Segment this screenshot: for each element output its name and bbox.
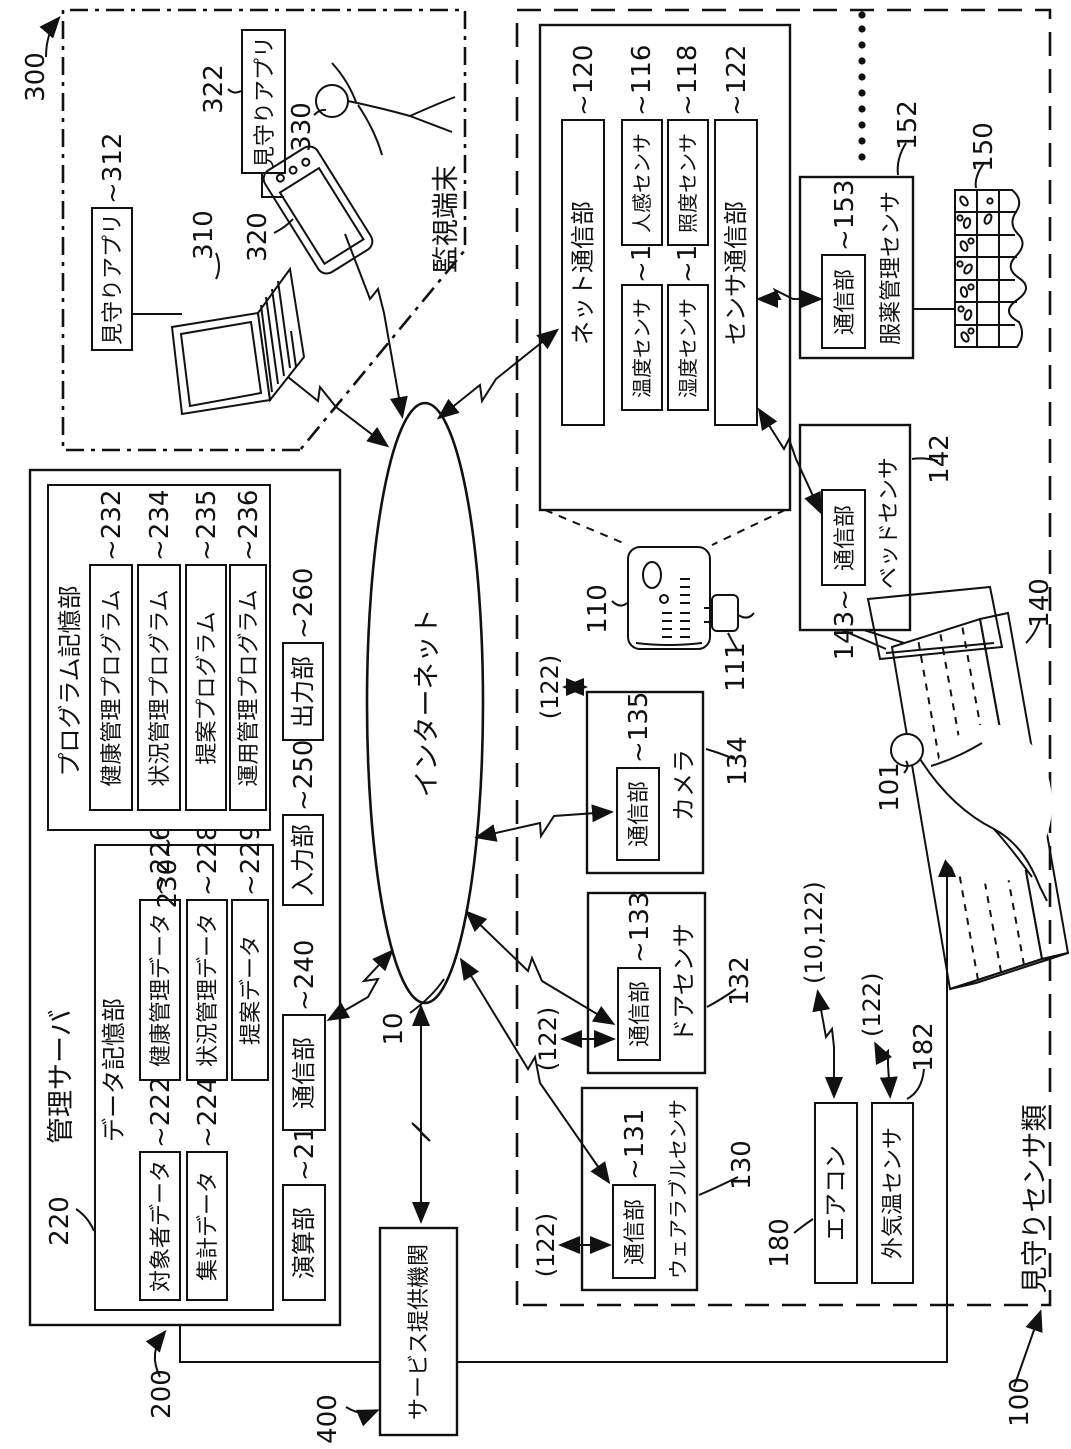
ref-200: 200 (147, 1369, 177, 1419)
wearable-sensor-label: ウェアラブルセンサ (666, 1099, 690, 1279)
illuminance-sensor-label: 照度センサ (676, 133, 700, 233)
ref-130: 130 (727, 1140, 757, 1190)
link-label-122-camera: (122) (536, 655, 564, 720)
leader-320 (274, 219, 293, 233)
ref-220: 220 (45, 1196, 75, 1246)
leader-400 (346, 1407, 376, 1413)
aircon-label: エアコン (822, 1145, 850, 1241)
status-data-label: 状況管理データ (196, 913, 221, 1067)
sensor-comm-label: センサ通信部 (722, 201, 750, 345)
ref-234: ~234 (145, 490, 175, 561)
leader-180 (794, 1219, 813, 1233)
status-program-label: 状況管理プログラム (148, 589, 173, 786)
pc-app-label: 見守りアプリ (101, 213, 126, 345)
ref-320: 320 (243, 212, 273, 262)
ref-400: 400 (313, 1394, 343, 1444)
monitoring-terminal-group: 監視端末 300 見守りアプリ ~312 310 見守りアプリ 322 (21, 10, 465, 450)
ref-250: ~250 (289, 740, 319, 811)
bed-comm-label: 通信部 (833, 505, 858, 571)
compute-unit-label: 演算部 (290, 1207, 318, 1279)
phone-app-label: 見守りアプリ (253, 36, 278, 168)
ref-322: 322 (199, 64, 229, 114)
ref-153: ~153 (830, 180, 860, 251)
motion-sensor-label: 人感センサ (630, 133, 654, 233)
leader-182 (907, 1069, 924, 1099)
camera-label: カメラ (670, 749, 698, 821)
ref-134: 134 (723, 736, 753, 786)
ref-110: 110 (583, 584, 613, 634)
leader-110 (612, 601, 627, 606)
health-data-label: 健康管理データ (149, 913, 174, 1067)
medication-sensor-label: 服薬管理センサ (879, 191, 904, 345)
camera-comm-label: 通信部 (627, 781, 652, 847)
watcher-person-icon (316, 63, 455, 155)
ref-152: 152 (893, 100, 923, 150)
data-storage-title: データ記憶部 (100, 998, 128, 1142)
leader-100 (1014, 1313, 1040, 1387)
ref-228: ~228 (193, 825, 223, 896)
ref-235: ~235 (192, 490, 222, 561)
service-provider-label: サービス提供機関 (407, 1244, 432, 1420)
link-122-outdoor-arrow (876, 1045, 890, 1095)
ref-312: ~312 (98, 133, 128, 204)
ref-229: ~229 (236, 825, 266, 896)
door-comm-label: 通信部 (628, 981, 653, 1047)
link-label-10-122-aircon: (10,122) (800, 881, 828, 984)
internet-label: インターネット (412, 609, 443, 798)
internet-hub-link (440, 331, 556, 417)
ref-122: ~122 (722, 45, 752, 116)
patent-figure-page: 220 管理サーバ データ記憶部 対象者データ ~222 集計データ ~224 … (0, 0, 1071, 1449)
hub-device-icon (628, 547, 710, 649)
ref-120: ~120 (569, 45, 599, 116)
watch-sensors-title: 見守りセンサ類 (1020, 1105, 1051, 1294)
ref-232: ~232 (97, 490, 127, 561)
subject-data-label: 対象者データ (149, 1160, 174, 1292)
hub-plug-icon (704, 595, 754, 631)
proposal-program-label: 提案プログラム (195, 611, 220, 764)
rotated-diagram-stage: 220 管理サーバ データ記憶部 対象者データ ~222 集計データ ~224 … (0, 0, 1071, 1449)
internet-group: インターネット 10 (367, 403, 483, 1046)
humidity-sensor-label: 湿度センサ (676, 298, 700, 398)
monitoring-terminal-title: 監視端末 (431, 165, 462, 273)
management-server-title: 管理サーバ (46, 1009, 77, 1144)
ref-180: 180 (765, 1218, 795, 1268)
input-unit-label: 入力部 (289, 824, 317, 896)
ref-143: 143~ (830, 589, 860, 660)
ref-330: 330 (287, 102, 317, 152)
wearable-comm-label: 通信部 (623, 1199, 648, 1265)
hub-detail-funnel (545, 510, 785, 545)
person-101-mask (928, 724, 1052, 884)
ref-236: ~236 (234, 490, 264, 561)
ref-222: ~222 (146, 1077, 176, 1148)
ref-100: 100 (1005, 1377, 1035, 1427)
ref-135: ~135 (624, 692, 654, 763)
link-label-122-door: (122) (534, 1007, 562, 1072)
leader-322 (228, 89, 241, 93)
ref-132: 132 (725, 956, 755, 1006)
operation-program-label: 運用管理プログラム (237, 589, 262, 786)
ref-133: ~133 (625, 892, 655, 963)
watch-sensors-group: 見守りセンサ類 100 ネット通信部 ~120 温度センサ ~112 湿度センサ… (517, 10, 1068, 1427)
ref-111: 111 (721, 642, 751, 692)
medication-comm-label: 通信部 (833, 269, 858, 335)
door-sensor-label: ドアセンサ (670, 923, 698, 1043)
server-comm-label: 通信部 (290, 1037, 318, 1109)
link-label-122-wearable: (122) (532, 1213, 560, 1278)
ref-310: 310 (189, 210, 219, 260)
ref-116: ~116 (627, 45, 657, 116)
outdoor-temp-label: 外気温センサ (881, 1127, 906, 1259)
bed-sensor-label: ベッドセンサ (877, 457, 902, 589)
link-10-122-aircon-arrow (818, 993, 834, 1095)
pillbox-icon (955, 190, 1026, 347)
ref-118: ~118 (673, 45, 703, 116)
ref-101: 101 (875, 762, 905, 812)
ref-240: ~240 (290, 940, 320, 1011)
aggregate-data-label: 集計データ (196, 1171, 221, 1281)
link-label-122-outdoor: (122) (858, 972, 886, 1037)
output-unit-label: 出力部 (289, 656, 317, 728)
ref-131: ~131 (620, 1109, 650, 1180)
management-server-group: 220 管理サーバ データ記憶部 対象者データ ~222 集計データ ~224 … (30, 470, 340, 1419)
ref-260: ~260 (289, 568, 319, 639)
laptop-internet-link (288, 377, 386, 445)
health-program-label: 健康管理プログラム (100, 589, 125, 786)
system-diagram: 220 管理サーバ データ記憶部 対象者データ ~222 集計データ ~224 … (0, 0, 1071, 1449)
temp-sensor-label: 温度センサ (630, 298, 654, 398)
ref-182: 182 (909, 1022, 939, 1072)
net-comm-label: ネット通信部 (569, 201, 597, 345)
proposal-data-label: 提案データ (239, 935, 264, 1045)
phone-internet-link (345, 234, 402, 415)
ref-300: 300 (21, 52, 51, 102)
program-storage-title: プログラム記憶部 (56, 585, 84, 776)
ref-230: 230~ (153, 837, 183, 908)
ref-10: 10 (379, 1012, 409, 1045)
more-sensors-dots (858, 11, 865, 160)
internet-provider-link (412, 1008, 430, 1220)
laptop-icon (172, 269, 304, 414)
pills (957, 195, 992, 343)
ref-224: ~224 (193, 1077, 223, 1148)
